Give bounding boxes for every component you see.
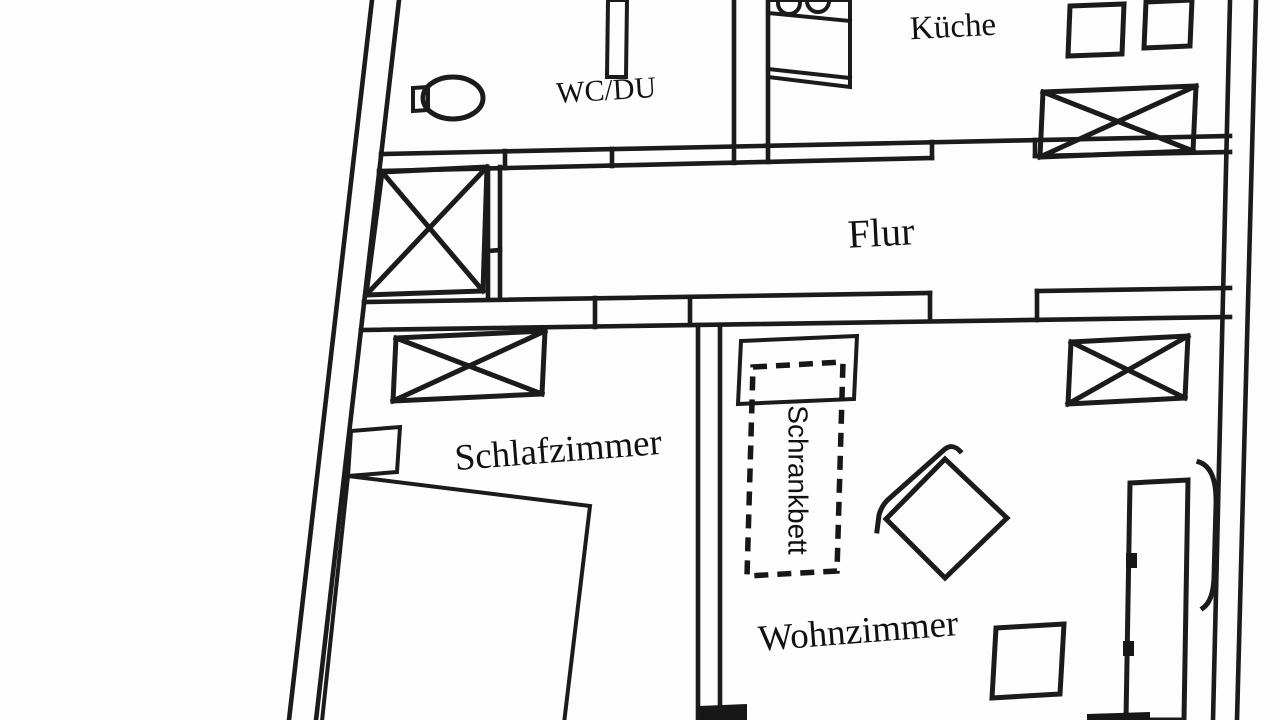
- room-bedroom: Schlafzimmer: [320, 331, 663, 720]
- room-label-livingroom: Wohnzimmer: [757, 603, 960, 660]
- table-diamond-icon: [886, 459, 1007, 578]
- outer-wall-right: [1213, 0, 1256, 720]
- livingroom-window-crossbox-icon: [1068, 336, 1188, 404]
- bed-icon: [320, 476, 590, 720]
- bedroom-window-crossbox-icon: [393, 331, 545, 401]
- room-label-bedroom: Schlafzimmer: [453, 422, 663, 479]
- kitchen-counter-divider: [768, 13, 850, 21]
- shaft-crossbox-icon: [366, 167, 487, 295]
- cabinet-knob-icon: [1126, 553, 1137, 568]
- room-label-wc: WC/DU: [555, 71, 657, 110]
- wall-hallway-bottom: [361, 288, 1230, 330]
- outer-wall-left: [289, 0, 399, 720]
- tall-cabinet-icon: [1126, 480, 1188, 720]
- room-livingroom: Schrankbett Wohnzimmer: [738, 336, 1216, 720]
- door-swing-curve: [1199, 462, 1216, 608]
- kitchen-window-crossbox-icon: [1040, 86, 1196, 157]
- kitchen-appliance-square-icon: [1144, 0, 1192, 48]
- toilet-icon: [423, 77, 483, 119]
- room-label-hallway: Flur: [847, 208, 916, 256]
- floor-plan-drawing: WC/DU Küche Flur Schlafzimmer: [0, 0, 1280, 720]
- wall-bottom-block: [699, 704, 747, 720]
- cabinet-bed-label: Schrankbett: [783, 405, 814, 555]
- wall-shaft-right: [488, 167, 500, 299]
- wc-door-leaf-icon: [607, 0, 627, 77]
- stove-burner-icon: [778, 0, 800, 14]
- cutoff-furniture-block: [1087, 712, 1150, 720]
- room-wc: WC/DU: [413, 0, 657, 119]
- stool-square-icon: [992, 624, 1064, 698]
- wall-wc-kitchen: [734, 0, 768, 163]
- bedroom-shelf-icon: [348, 427, 400, 476]
- cabinet-knob-icon: [1123, 641, 1134, 656]
- room-kitchen: Küche: [768, 0, 1196, 157]
- floor-plan-canvas: WC/DU Küche Flur Schlafzimmer: [0, 0, 1280, 720]
- room-label-kitchen: Küche: [909, 7, 997, 47]
- cabinet-bed-housing: [738, 336, 857, 404]
- kitchen-appliance-square-icon: [1068, 4, 1124, 56]
